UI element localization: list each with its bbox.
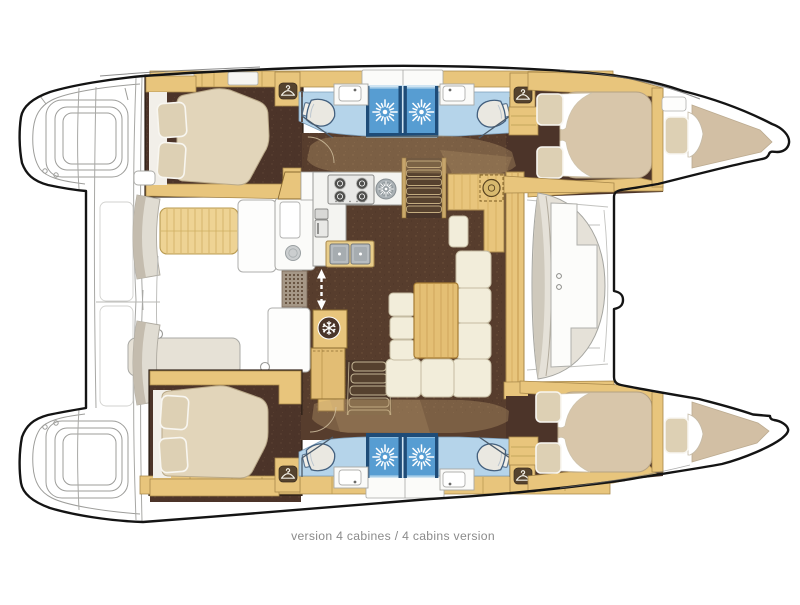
svg-text:version 4 cabines / 4 cabins v: version 4 cabines / 4 cabins version: [291, 529, 495, 543]
